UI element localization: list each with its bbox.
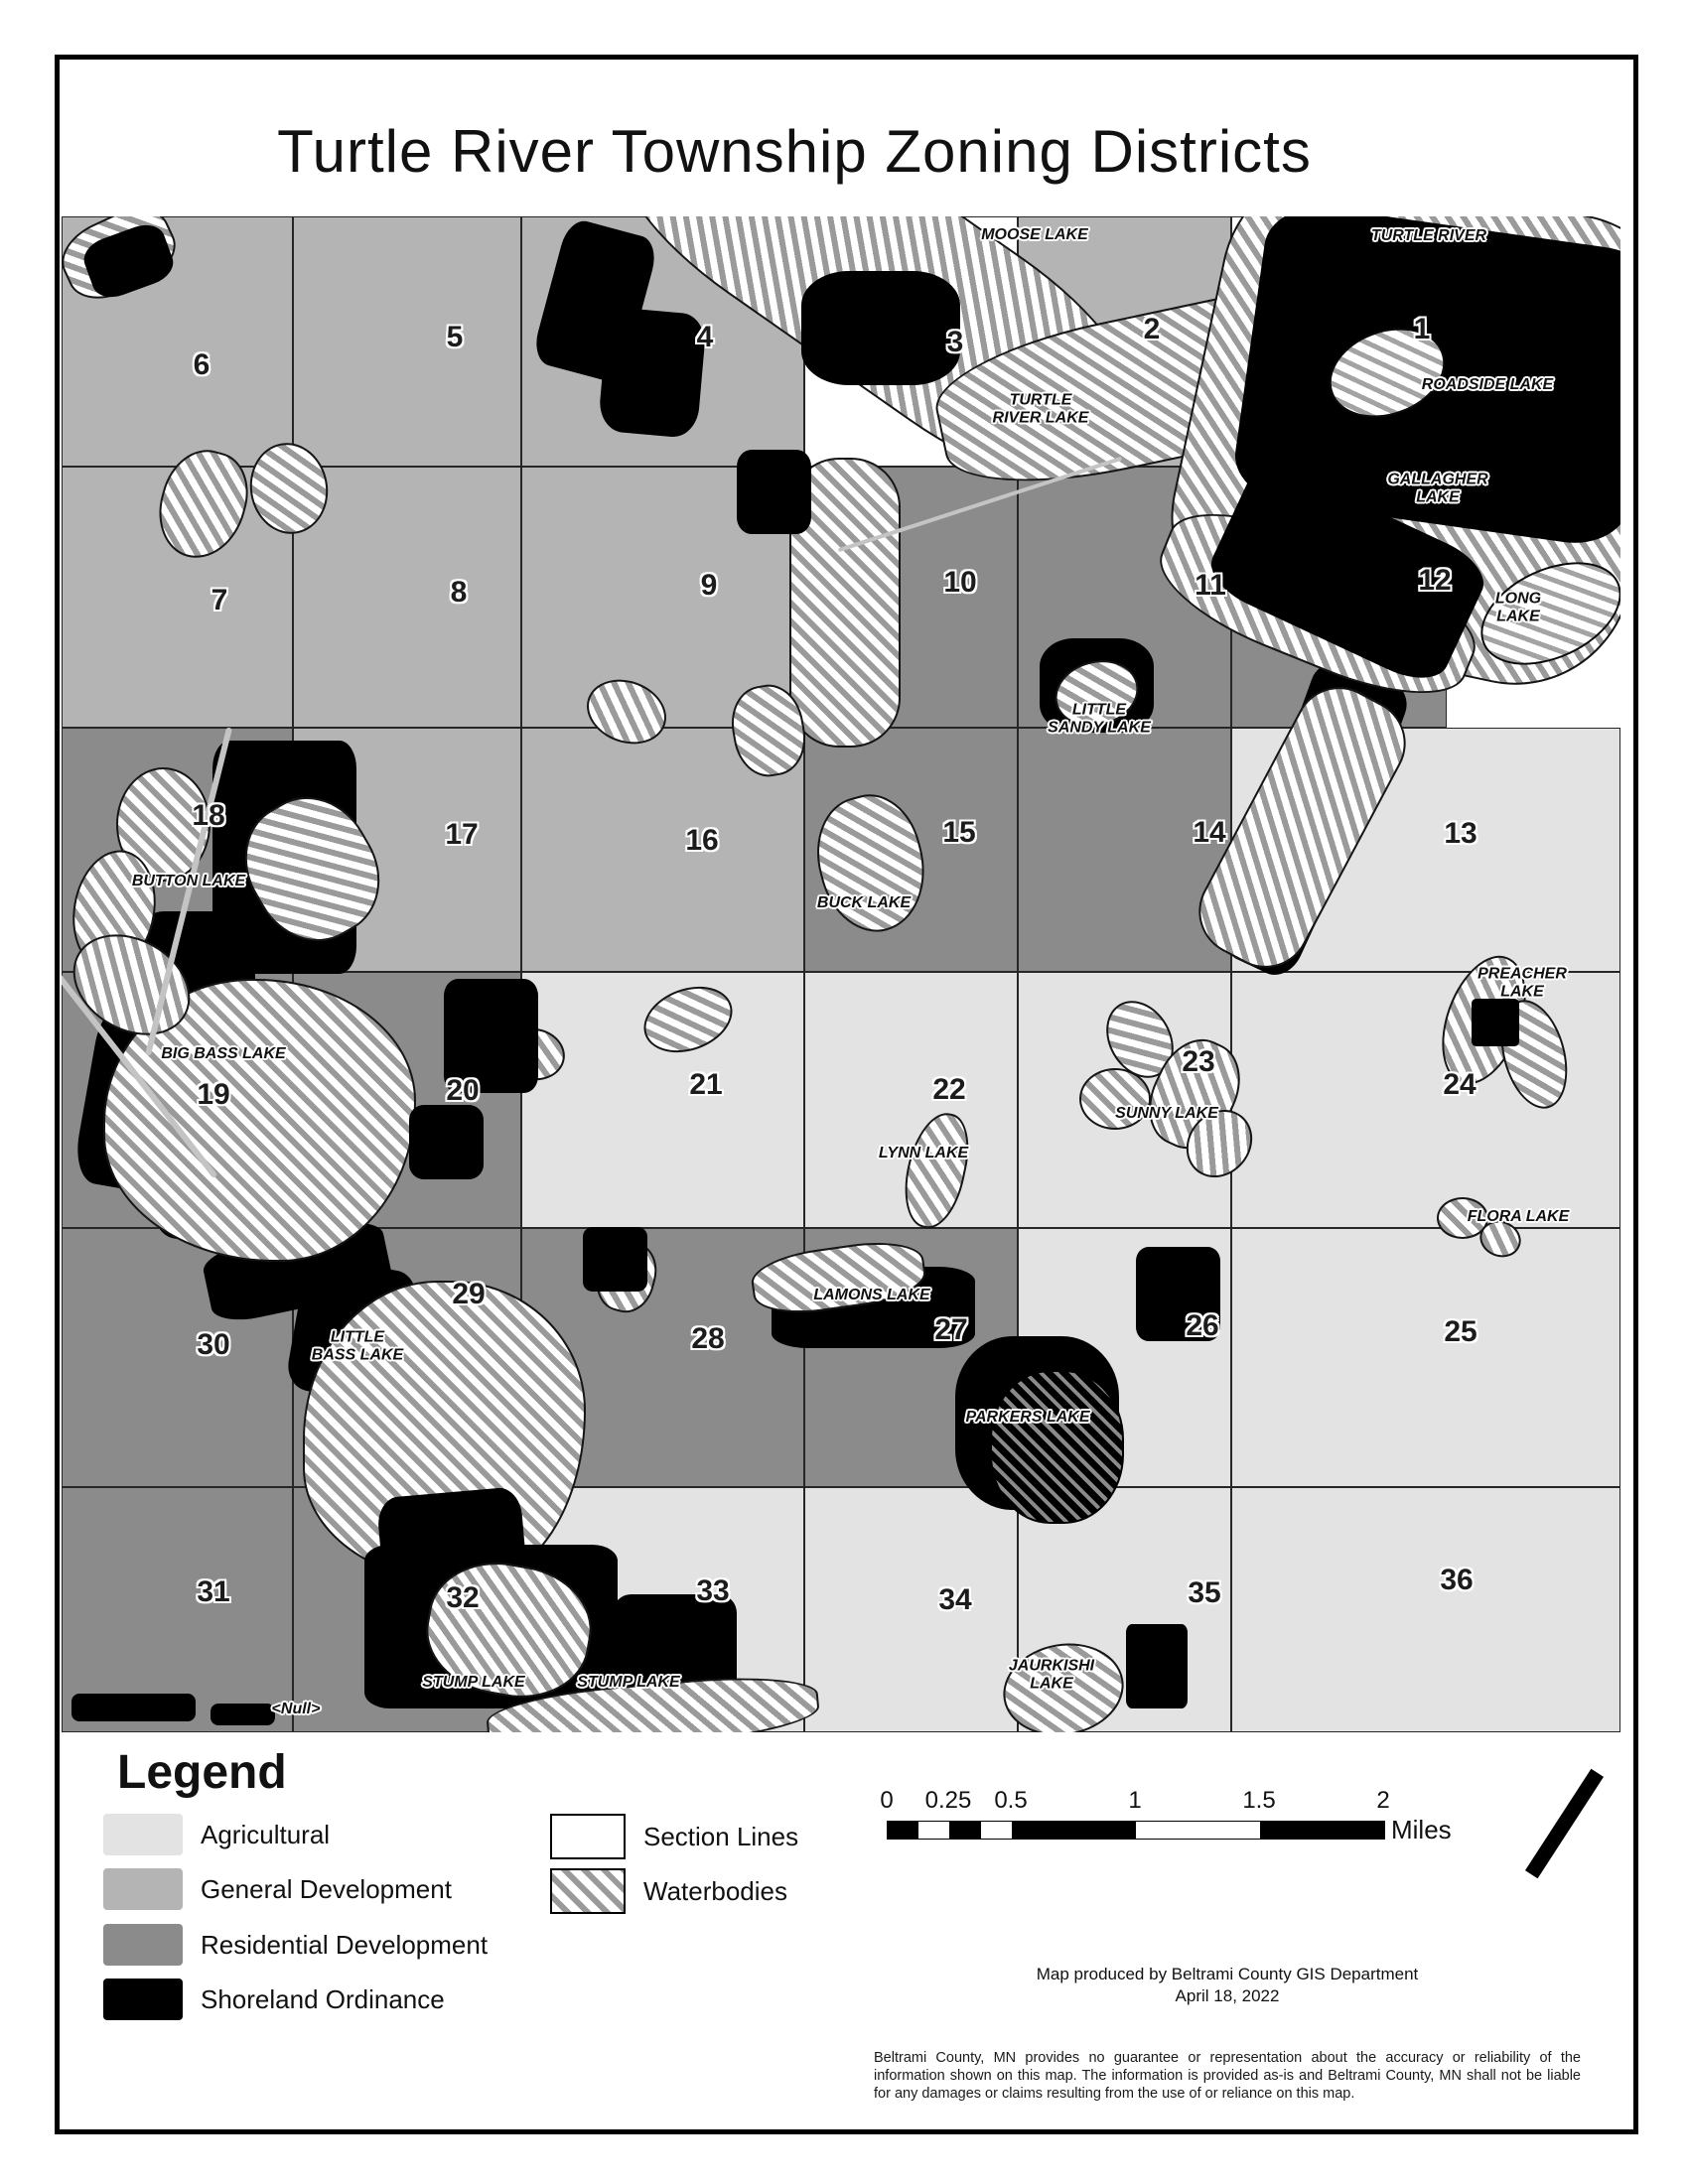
- section-number-8: 8: [451, 576, 468, 610]
- section-number-14: 14: [1193, 816, 1225, 850]
- lake-label-big-bass-lake: BIG BASS LAKE: [161, 1045, 285, 1063]
- section-number-35: 35: [1188, 1576, 1220, 1610]
- lake-label-buck-lake: BUCK LAKE: [817, 894, 911, 912]
- shoreland-shape: [737, 450, 811, 534]
- legend-item-general-development: General Development: [103, 1868, 452, 1910]
- waterbodies-swatch: [550, 1868, 626, 1914]
- shoreland-shape: [211, 1704, 275, 1725]
- legend-item-label: General Development: [201, 1874, 452, 1905]
- section-number-34: 34: [938, 1583, 971, 1617]
- scale-bar-segments: [887, 1821, 1385, 1840]
- section-cell-24: [1231, 972, 1620, 1228]
- section-cell-36: [1231, 1487, 1620, 1732]
- lake-label-stump-lake: STUMP LAKE: [422, 1674, 524, 1692]
- section-number-11: 11: [1195, 569, 1226, 603]
- section-cell-25: [1231, 1228, 1620, 1487]
- scale-tick: 2: [1376, 1787, 1389, 1815]
- section-number-5: 5: [447, 321, 464, 354]
- legend-title: Legend: [117, 1745, 287, 1800]
- lake-label-roadside-lake: ROADSIDE LAKE: [1422, 376, 1553, 394]
- section-number-7: 7: [211, 584, 228, 617]
- lake-label-long-lake: LONG LAKE: [1495, 590, 1541, 624]
- attribution: Map produced by Beltrami County GIS Depa…: [874, 1964, 1581, 2007]
- legend-item-residential-development: Residential Development: [103, 1924, 488, 1966]
- section-number-30: 30: [197, 1328, 229, 1362]
- section-cell-8: [293, 467, 521, 728]
- legend-item-label: Residential Development: [201, 1930, 488, 1961]
- agricultural-swatch: [103, 1814, 183, 1855]
- lake-label-flora-lake: FLORA LAKE: [1468, 1208, 1570, 1226]
- shoreland-shape: [598, 307, 708, 439]
- lake-label-little-bass-lake: LITTLE BASS LAKE: [312, 1328, 403, 1363]
- lake-label-moose-lake: MOOSE LAKE: [981, 226, 1088, 244]
- lake-label-turtle-river-lake: TURTLE RIVER LAKE: [993, 391, 1089, 426]
- legend-item-agricultural: Agricultural: [103, 1814, 330, 1855]
- section-number-31: 31: [197, 1575, 229, 1609]
- shoreland-shape: [409, 1105, 484, 1179]
- legend-item-section-lines: Section Lines: [550, 1814, 798, 1859]
- scale-unit-label: Miles: [1391, 1815, 1452, 1845]
- section-cell-5: [293, 216, 521, 467]
- section-number-24: 24: [1443, 1068, 1476, 1102]
- lake-label-turtle-river: TURTLE RIVER: [1371, 227, 1486, 245]
- section-number-23: 23: [1182, 1045, 1214, 1079]
- section-number-3: 3: [947, 326, 964, 359]
- lake-label-parkers-lake: PARKERS LAKE: [965, 1409, 1089, 1427]
- map-title: Turtle River Township Zoning Districts: [277, 117, 1312, 186]
- section-number-22: 22: [932, 1073, 965, 1107]
- section-number-17: 17: [445, 818, 478, 852]
- section-number-16: 16: [685, 824, 718, 858]
- section-number-25: 25: [1444, 1315, 1477, 1349]
- lake-label-null: <Null>: [272, 1701, 321, 1718]
- section-number-10: 10: [943, 566, 976, 600]
- section-number-36: 36: [1440, 1564, 1473, 1597]
- residential-development-swatch: [103, 1924, 183, 1966]
- section-number-20: 20: [446, 1074, 479, 1108]
- section-number-33: 33: [696, 1574, 729, 1608]
- legend-item-shoreland-ordinance: Shoreland Ordinance: [103, 1979, 445, 2020]
- waterbody-shape: [990, 1370, 1124, 1524]
- legend-item-label: Waterbodies: [643, 1876, 787, 1907]
- attribution-line1: Map produced by Beltrami County GIS Depa…: [874, 1964, 1581, 1985]
- lake-label-lamons-lake: LAMONS LAKE: [813, 1287, 929, 1304]
- section-number-6: 6: [194, 348, 211, 382]
- lake-label-little-sandy-lake: LITTLE SANDY LAKE: [1048, 701, 1151, 736]
- lake-label-button-lake: BUTTON LAKE: [132, 873, 245, 890]
- section-number-29: 29: [452, 1278, 485, 1311]
- shoreland-ordinance-swatch: [103, 1979, 183, 2020]
- section-number-1: 1: [1414, 313, 1431, 346]
- legend-item-label: Agricultural: [201, 1820, 330, 1850]
- section-number-4: 4: [697, 321, 714, 354]
- shoreland-shape: [71, 1694, 196, 1721]
- section-number-12: 12: [1418, 564, 1451, 598]
- scale-tick: 0.5: [994, 1787, 1027, 1815]
- scale-tick: 1.5: [1242, 1787, 1275, 1815]
- section-number-2: 2: [1144, 313, 1161, 346]
- general-development-swatch: [103, 1868, 183, 1910]
- lake-label-lynn-lake: LYNN LAKE: [879, 1145, 968, 1162]
- lake-label-gallagher-lake: GALLAGHER LAKE: [1387, 471, 1487, 505]
- zoning-map: 6543217891011121817161514131920212223243…: [62, 216, 1620, 1732]
- legend-item-label: Shoreland Ordinance: [201, 1984, 445, 2015]
- section-cell-14: [1018, 728, 1231, 972]
- section-cell-34: [804, 1487, 1018, 1732]
- shoreland-shape: [1472, 999, 1519, 1046]
- section-number-26: 26: [1186, 1309, 1218, 1343]
- page: Turtle River Township Zoning Districts 6…: [0, 0, 1688, 2184]
- scale-tick: 0: [880, 1787, 893, 1815]
- section-number-18: 18: [192, 799, 224, 833]
- lake-label-jaurkishi-lake: JAURKISHI LAKE: [1009, 1657, 1094, 1692]
- attribution-line2: April 18, 2022: [874, 1985, 1581, 2007]
- section-number-32: 32: [446, 1581, 479, 1615]
- lake-label-stump-lake: STUMP LAKE: [577, 1674, 679, 1692]
- legend-item-label: Section Lines: [643, 1822, 798, 1852]
- lake-label-preacher-lake: PREACHER LAKE: [1477, 965, 1567, 1000]
- lake-label-sunny-lake: SUNNY LAKE: [1115, 1105, 1218, 1123]
- section-number-15: 15: [942, 816, 975, 850]
- shoreland-shape: [1126, 1624, 1188, 1708]
- scale-bar: 0 0.25 0.5 1 1.5 2 Miles: [887, 1787, 1443, 1846]
- shoreland-shape: [801, 271, 960, 385]
- section-number-19: 19: [197, 1078, 229, 1112]
- section-number-9: 9: [701, 569, 718, 603]
- shoreland-shape: [583, 1227, 647, 1292]
- section-lines-swatch: [550, 1814, 626, 1859]
- section-number-21: 21: [689, 1068, 722, 1102]
- scale-tick: 0.25: [925, 1787, 972, 1815]
- scale-tick: 1: [1128, 1787, 1141, 1815]
- section-number-28: 28: [691, 1322, 724, 1356]
- disclaimer-text: Beltrami County, MN provides no guarante…: [874, 2049, 1581, 2103]
- legend-item-waterbodies: Waterbodies: [550, 1868, 787, 1914]
- section-number-13: 13: [1444, 817, 1477, 851]
- section-number-27: 27: [934, 1313, 967, 1347]
